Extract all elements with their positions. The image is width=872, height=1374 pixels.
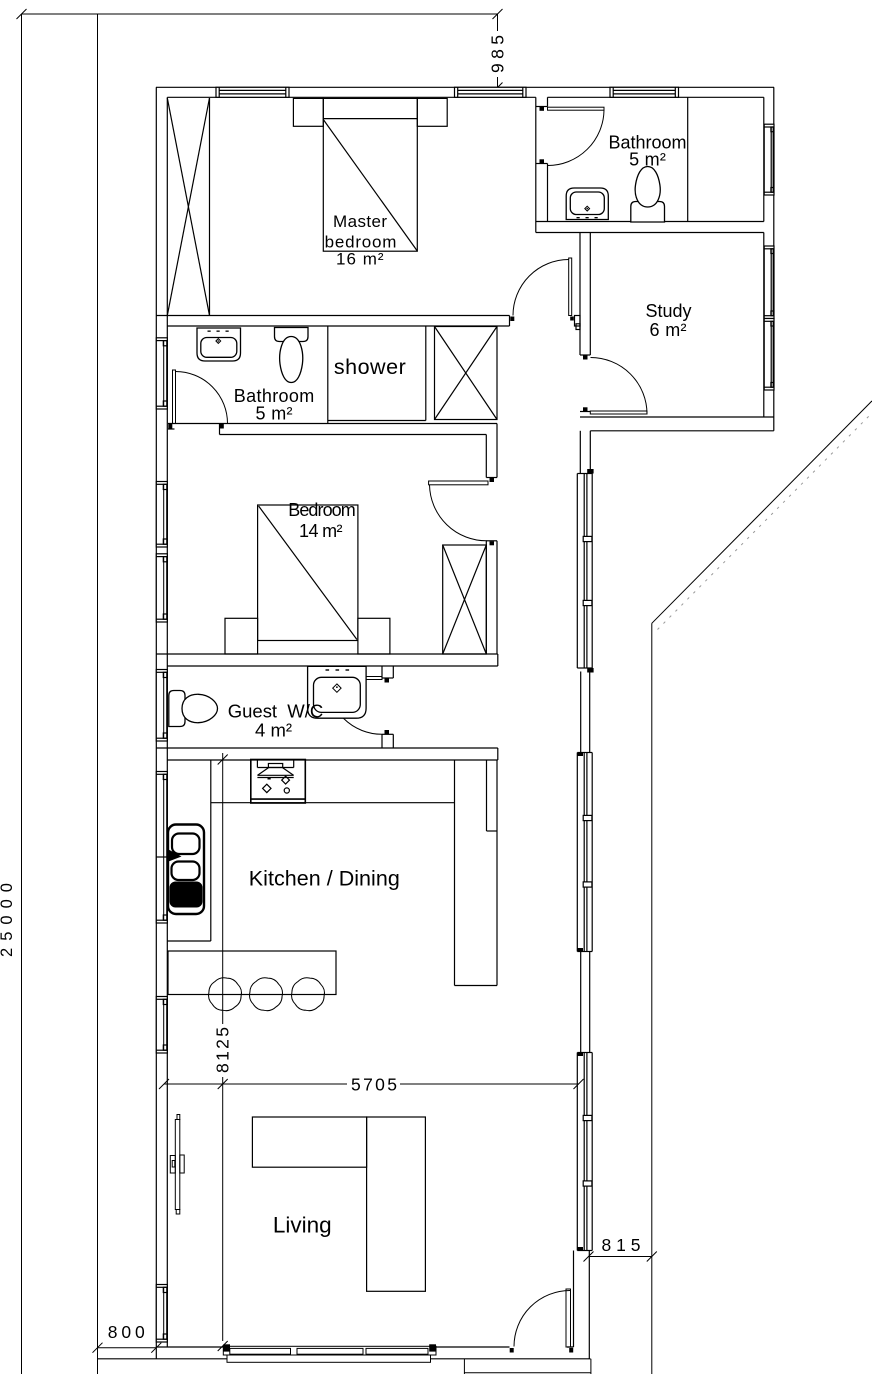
svg-text:985: 985	[488, 35, 508, 73]
svg-text:6 m²: 6 m²	[650, 320, 687, 340]
svg-text:Bedroom: Bedroom	[288, 500, 356, 520]
svg-text:Kitchen / Dining: Kitchen / Dining	[249, 867, 400, 891]
svg-text:Study: Study	[646, 301, 692, 321]
svg-text:14 m²: 14 m²	[299, 521, 343, 541]
svg-text:5 m²: 5 m²	[256, 403, 293, 423]
svg-text:Guest W/C: Guest W/C	[228, 701, 324, 722]
svg-text:16 m²: 16 m²	[336, 250, 384, 269]
svg-text:815: 815	[602, 1235, 641, 1255]
svg-text:4 m²: 4 m²	[255, 720, 292, 741]
svg-text:Master: Master	[333, 212, 387, 231]
svg-text:800: 800	[108, 1322, 145, 1342]
svg-text:Living: Living	[273, 1213, 332, 1238]
svg-text:5 m²: 5 m²	[629, 150, 666, 170]
svg-text:shower: shower	[334, 355, 406, 379]
